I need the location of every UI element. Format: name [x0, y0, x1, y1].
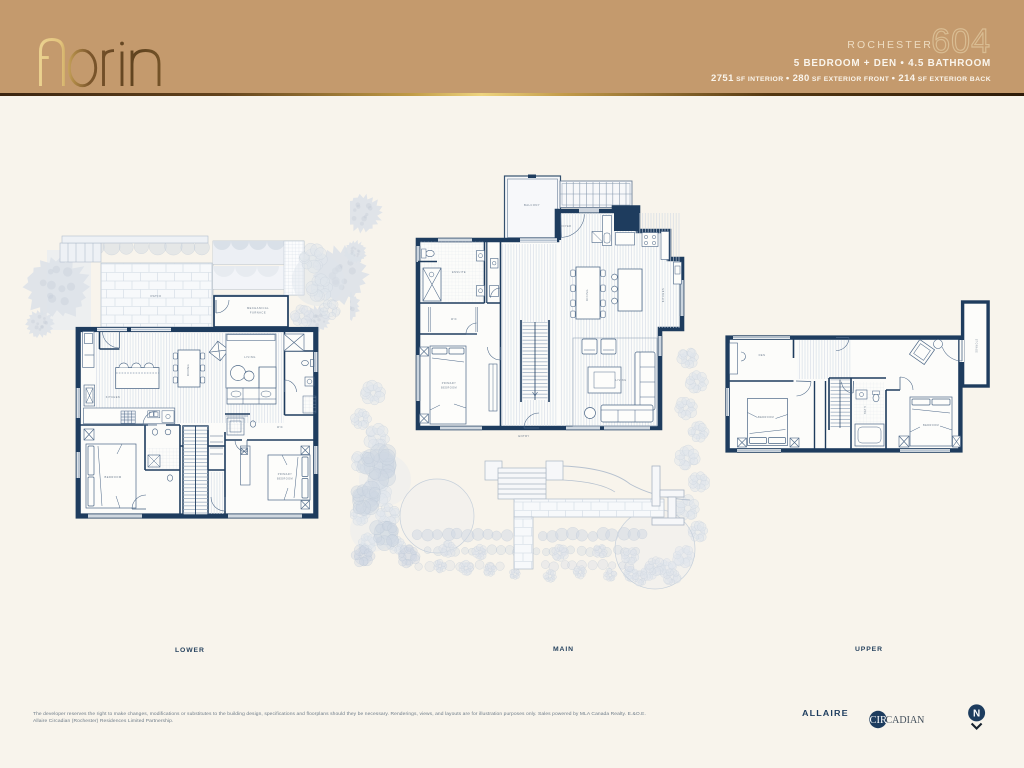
svg-text:DINING: DINING — [585, 289, 589, 301]
svg-text:WIC: WIC — [451, 318, 457, 321]
svg-text:LIVING: LIVING — [615, 378, 626, 382]
svg-text:FOYER: FOYER — [561, 225, 572, 228]
svg-text:ENSUITE: ENSUITE — [452, 271, 466, 274]
svg-text:DINING: DINING — [186, 364, 190, 376]
svg-text:ENTRY: ENTRY — [518, 434, 529, 438]
svg-text:CIR: CIR — [870, 715, 888, 726]
svg-text:FURNACE: FURNACE — [250, 311, 266, 315]
svg-text:CADIAN: CADIAN — [886, 715, 925, 726]
svg-text:604: 604 — [931, 24, 991, 58]
svg-text:BALCONY: BALCONY — [524, 203, 540, 207]
svg-text:STORAGE: STORAGE — [975, 339, 978, 353]
svg-text:PRIMARY: PRIMARY — [442, 382, 457, 385]
svg-text:BATH: BATH — [864, 406, 867, 414]
svg-text:LIVING: LIVING — [244, 355, 256, 359]
svg-text:KITCHEN: KITCHEN — [106, 395, 121, 399]
svg-text:BEDROOM: BEDROOM — [104, 475, 121, 479]
svg-text:BEDROOM: BEDROOM — [923, 424, 939, 427]
svg-text:MECHANICAL: MECHANICAL — [247, 306, 269, 310]
svg-text:DEN: DEN — [759, 353, 766, 357]
svg-text:PRIMARY: PRIMARY — [278, 473, 293, 476]
svg-text:BEDROOM: BEDROOM — [441, 387, 457, 390]
svg-text:BEDROOM: BEDROOM — [758, 416, 774, 419]
svg-text:PATIO: PATIO — [150, 294, 161, 298]
svg-text:WIC: WIC — [277, 426, 283, 429]
svg-text:BEDROOM: BEDROOM — [277, 478, 293, 481]
svg-text:KITCHEN: KITCHEN — [661, 288, 665, 303]
svg-text:N: N — [973, 709, 980, 720]
